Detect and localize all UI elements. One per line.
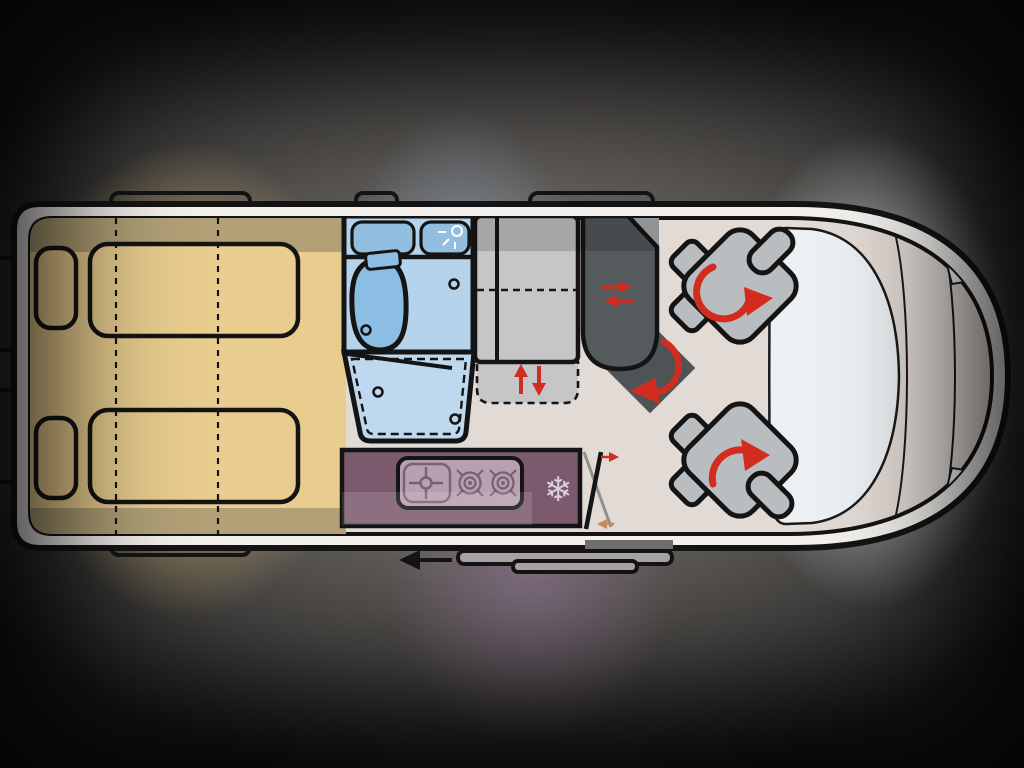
mattress-bottom: [90, 410, 298, 502]
mattress-top: [90, 244, 298, 336]
toilet: [352, 260, 406, 350]
rear-bed-area: [28, 216, 346, 536]
shower-tray-shape: [344, 352, 474, 441]
toilet-lid: [365, 250, 400, 269]
door-step: [585, 540, 673, 549]
wall-shadow-band: [473, 218, 659, 251]
campervan-floorplan-scene: ❄: [0, 0, 1024, 768]
pillow-top: [36, 248, 76, 328]
lift-bed-extension: [477, 362, 578, 403]
bathroom: [344, 216, 473, 352]
sliding-door-rail-inner: [513, 561, 637, 572]
travel-arrow-head: [399, 550, 420, 570]
kitchen-unit: ❄: [342, 450, 580, 526]
pillow-bottom: [36, 418, 76, 498]
bathroom-cabinet-shower: [421, 222, 469, 254]
floorplan-svg: ❄: [0, 0, 1024, 768]
shower-tray: [344, 352, 474, 441]
travel-direction-arrow: [399, 550, 452, 570]
interior: ❄: [28, 216, 997, 536]
counter-highlight: [342, 492, 532, 525]
bathroom-cabinet-left: [352, 222, 414, 254]
fridge-icon: ❄: [544, 470, 573, 510]
